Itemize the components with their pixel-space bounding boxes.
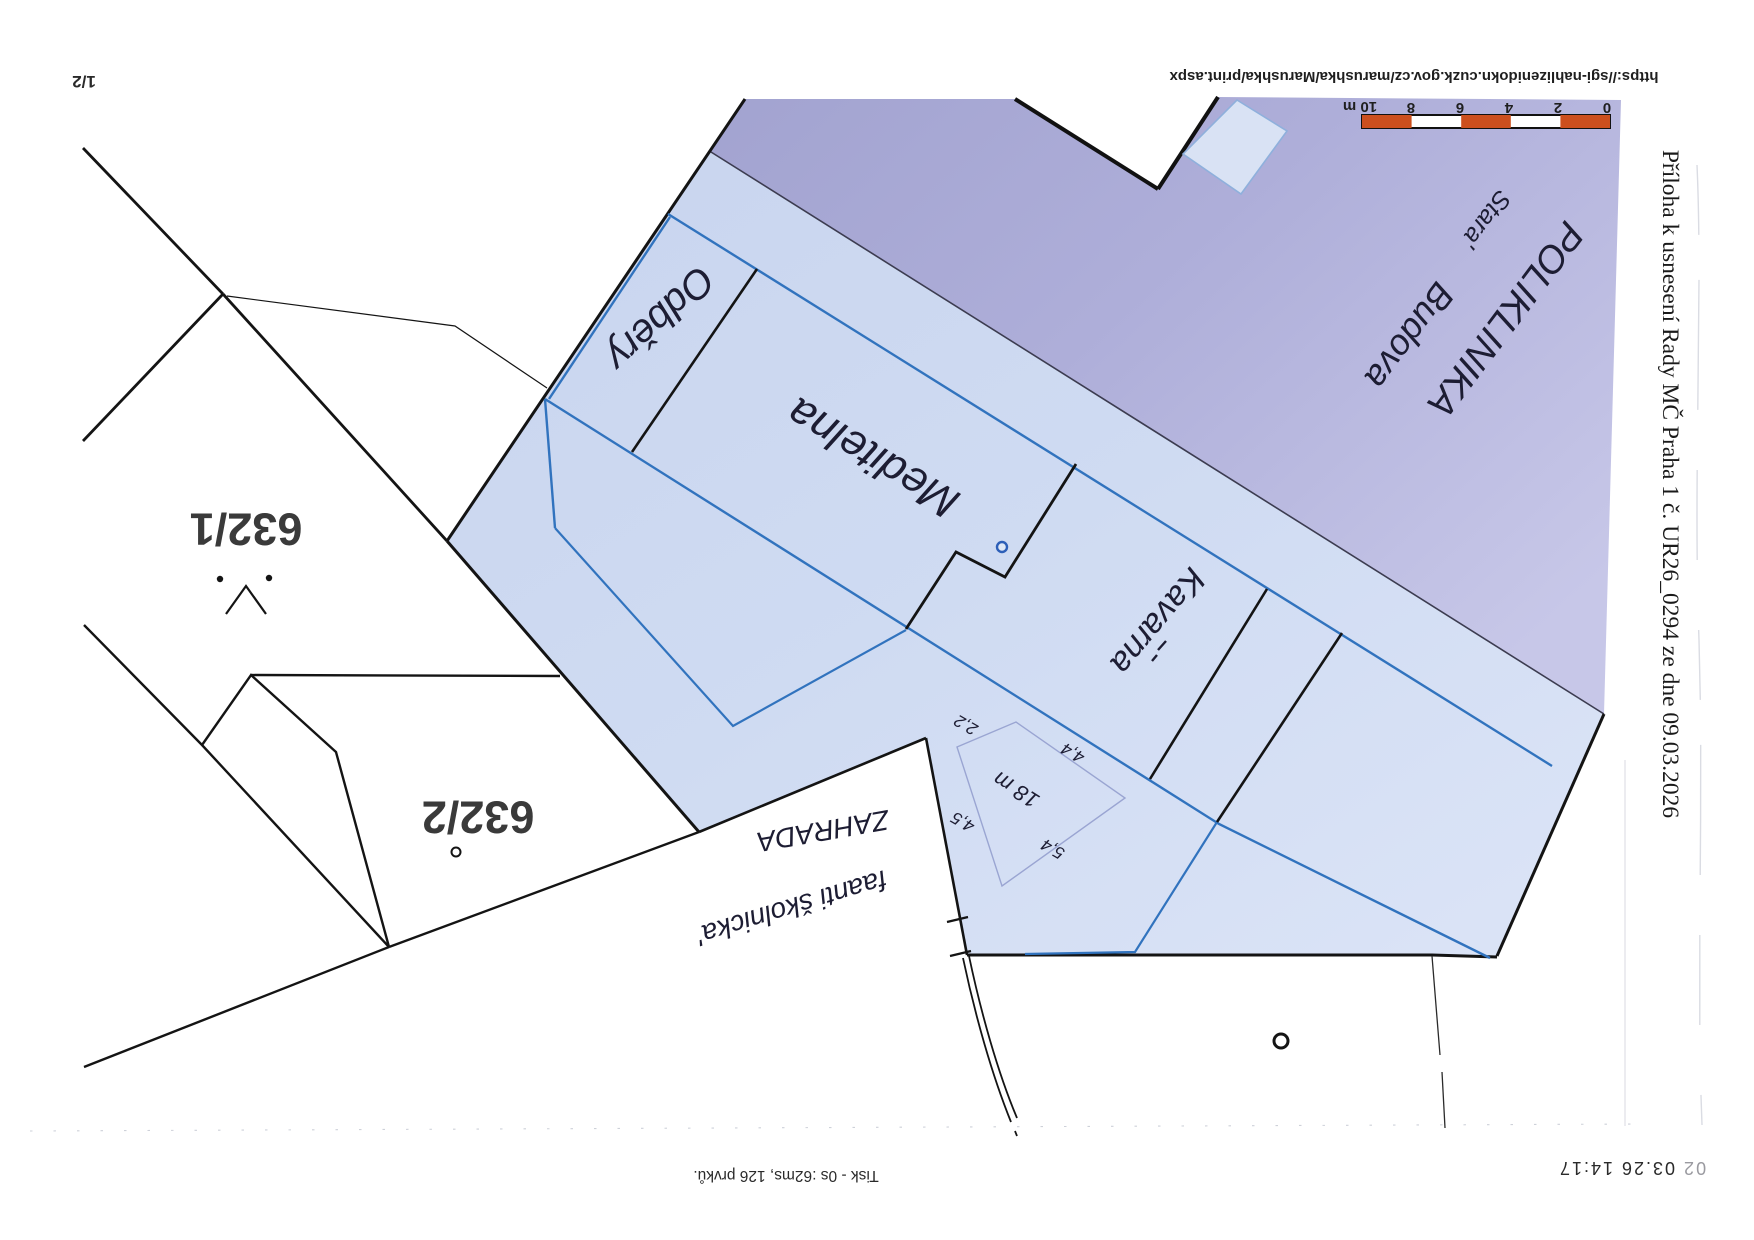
svg-text:632/2: 632/2 [422, 792, 535, 843]
svg-text:1/2: 1/2 [72, 72, 96, 91]
svg-text:8: 8 [1407, 99, 1415, 116]
svg-text:10 m: 10 m [1343, 98, 1377, 115]
svg-text:Příloha k usnesení Rady MČ Pra: Příloha k usnesení Rady MČ Praha 1 č. UR… [1657, 150, 1684, 819]
svg-text:632/1: 632/1 [190, 504, 303, 555]
svg-text:4: 4 [1504, 99, 1513, 116]
svg-text:Tisk - 0s :62ms, 126 prvků.: Tisk - 0s :62ms, 126 prvků. [693, 1167, 879, 1184]
svg-text:02 03.26 14:17: 02 03.26 14:17 [1558, 1158, 1706, 1178]
svg-text:0: 0 [1603, 99, 1611, 116]
svg-text:2: 2 [1554, 99, 1562, 116]
svg-text:6: 6 [1456, 99, 1464, 116]
svg-text:ZAHRADA: ZAHRADA [754, 804, 892, 858]
svg-text:https://sgi-nahlizenidokn.cuzk: https://sgi-nahlizenidokn.cuzk.gov.cz/ma… [1169, 68, 1659, 85]
svg-text:faanti školnicka': faanti školnicka' [692, 864, 891, 952]
